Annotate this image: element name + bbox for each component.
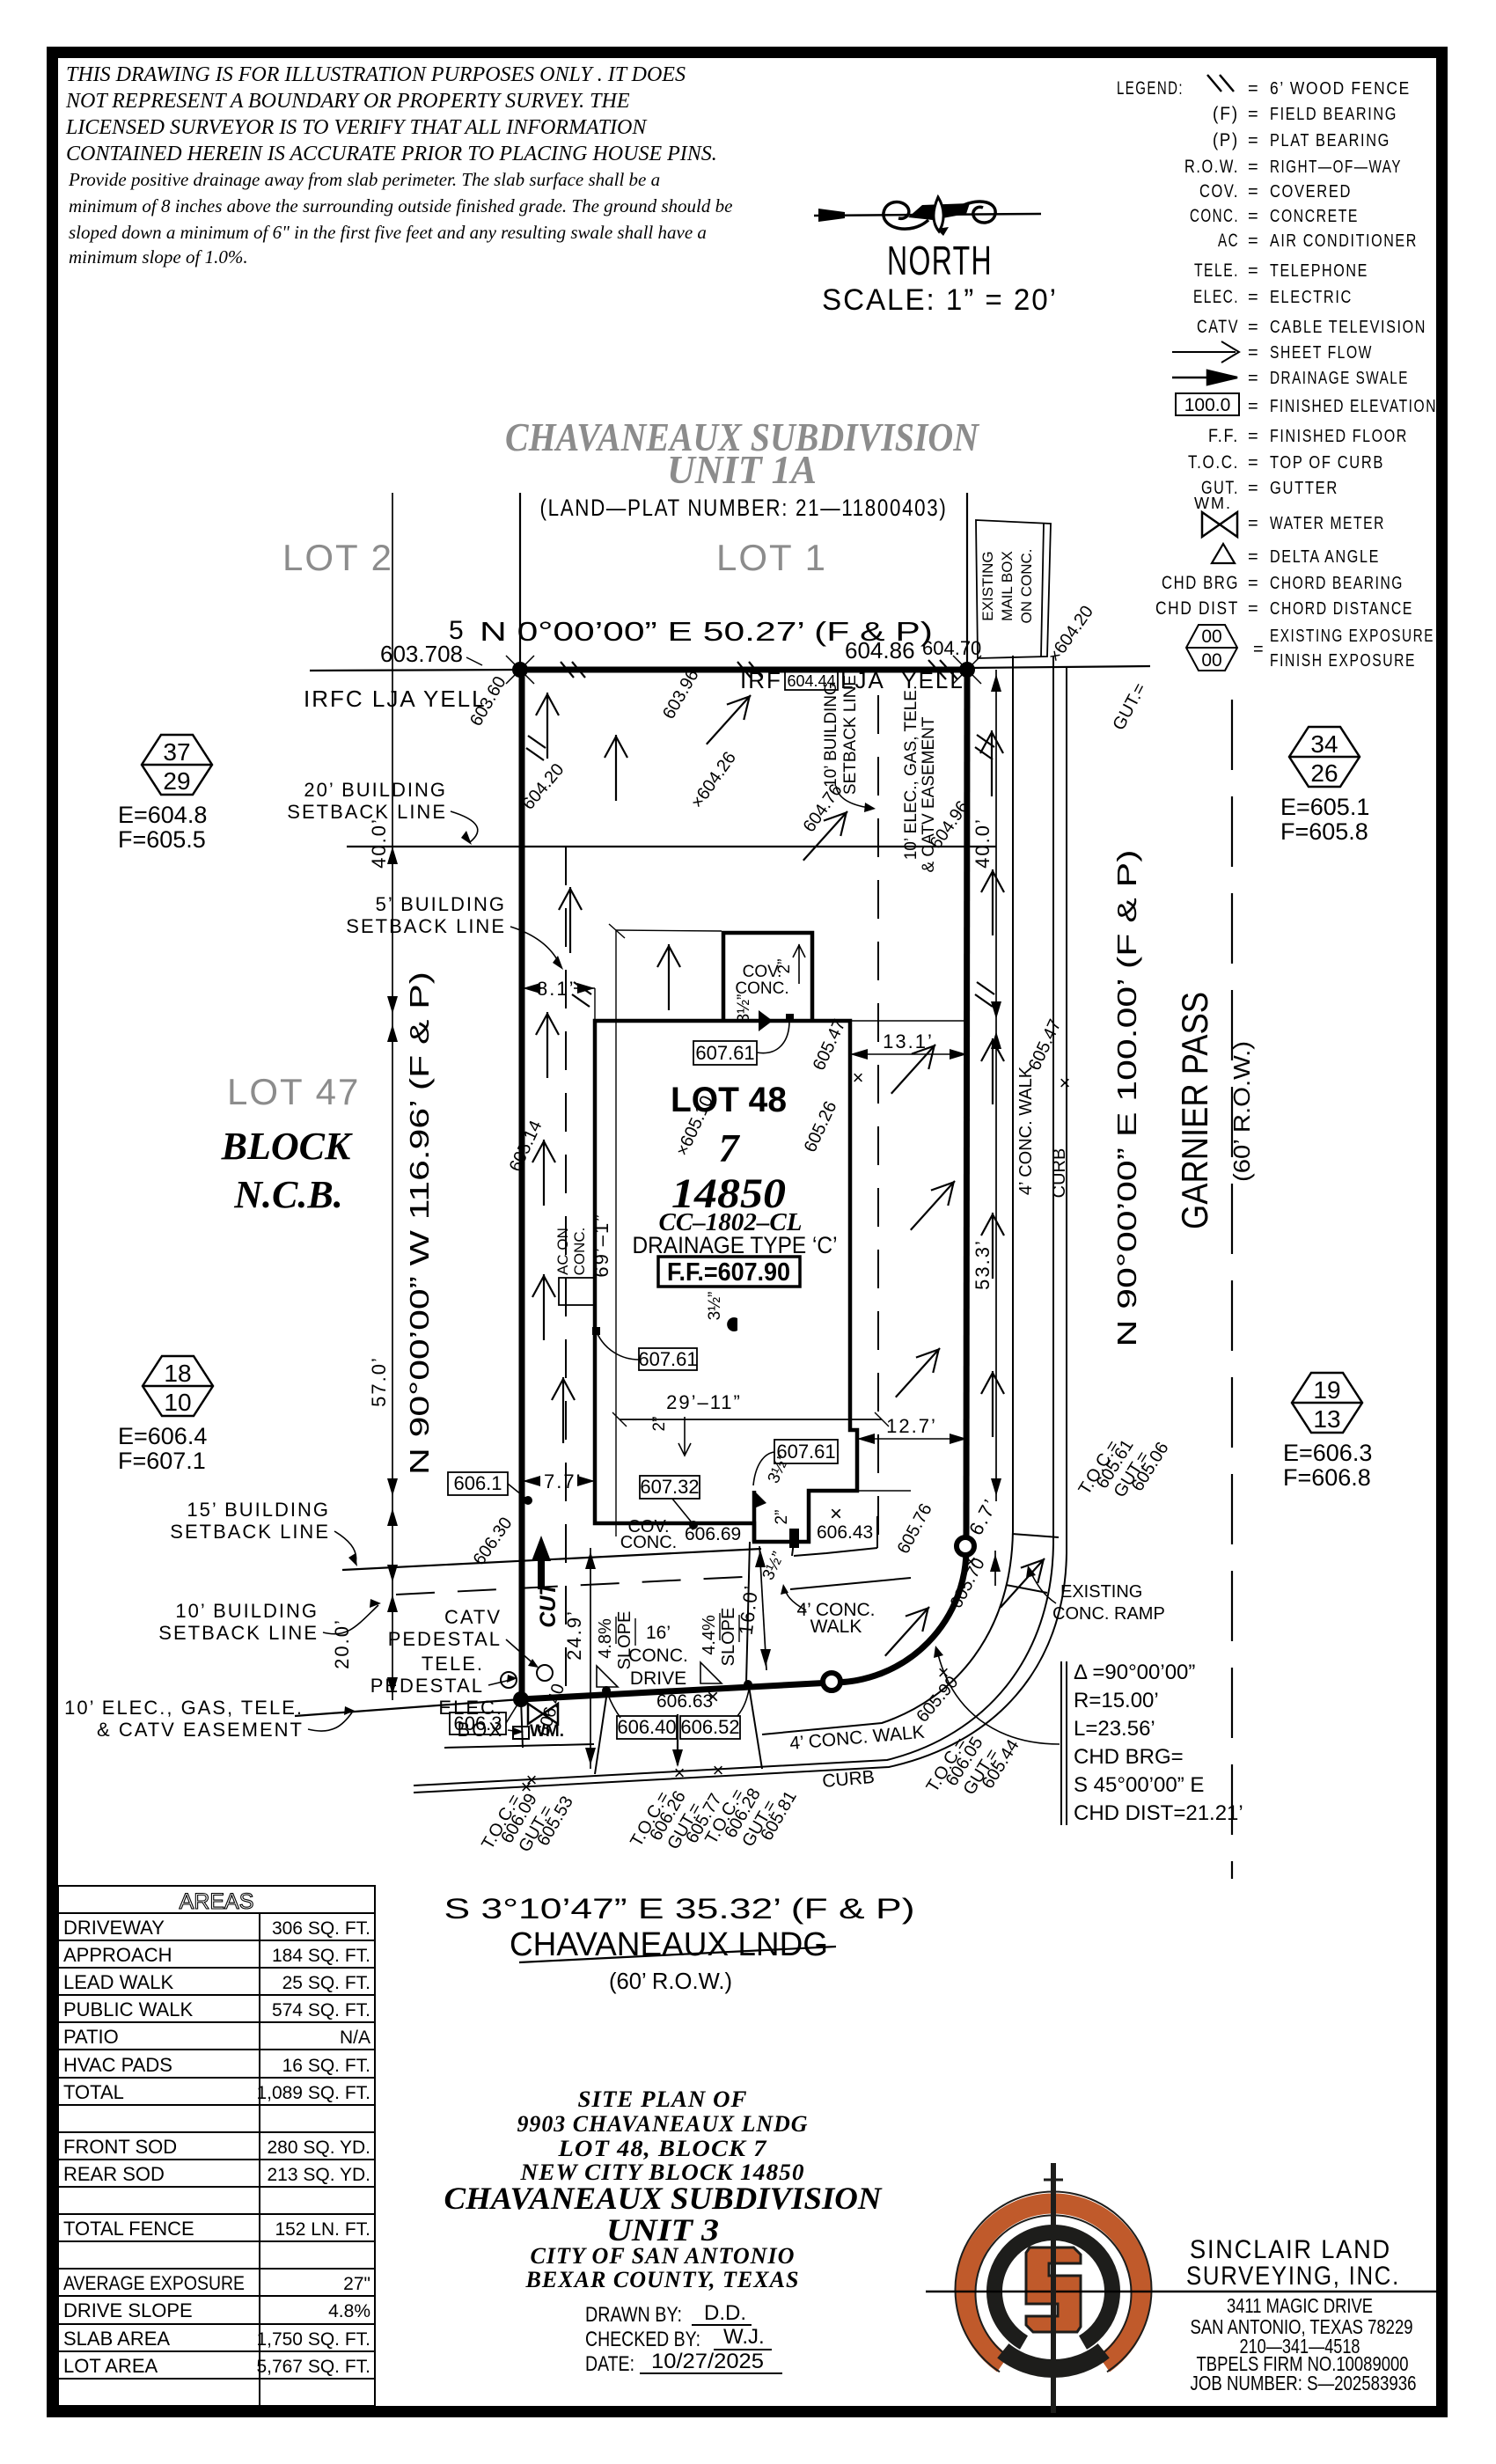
svg-text:AC ON: AC ON: [554, 1228, 571, 1275]
svg-text:19: 19: [1313, 1376, 1340, 1404]
svg-text:AVERAGE EXPOSURE: AVERAGE EXPOSURE: [63, 2272, 245, 2294]
svg-text:10’ ELEC., GAS, TELE.: 10’ ELEC., GAS, TELE.: [64, 1697, 304, 1719]
svg-text:×: ×: [526, 1769, 538, 1791]
svg-text:=: =: [1248, 453, 1260, 473]
svg-text:E=604.8: E=604.8: [118, 802, 207, 828]
svg-text:3411 MAGIC DRIVE: 3411 MAGIC DRIVE: [1227, 2294, 1373, 2317]
svg-text:PEDESTAL: PEDESTAL: [370, 1675, 484, 1697]
svg-text:2”: 2”: [773, 1510, 791, 1525]
svg-text:EXISTING: EXISTING: [979, 551, 996, 620]
svg-text:184 SQ. FT.: 184 SQ. FT.: [272, 1946, 370, 1966]
svg-text:16 SQ. FT.: 16 SQ. FT.: [282, 2056, 370, 2076]
svg-text:1,750 SQ. FT.: 1,750 SQ. FT.: [256, 2329, 370, 2350]
svg-text:4.8%: 4.8%: [328, 2301, 370, 2321]
svg-text:TELE.: TELE.: [1194, 260, 1239, 281]
svg-text:40.0’: 40.0’: [972, 818, 994, 869]
svg-text:152 LN. FT.: 152 LN. FT.: [275, 2219, 370, 2240]
svg-text:S 45°00’00” E: S 45°00’00” E: [1074, 1773, 1204, 1797]
svg-text:CONC.: CONC.: [735, 979, 788, 998]
svg-text:CATV: CATV: [1197, 317, 1239, 337]
svg-text:F.F.=607.90: F.F.=607.90: [667, 1258, 790, 1287]
svg-text:E=606.4: E=606.4: [118, 1423, 207, 1449]
svg-text:25 SQ. FT.: 25 SQ. FT.: [282, 1973, 370, 1993]
svg-text:(60’ R.O.W.): (60’ R.O.W.): [609, 1968, 732, 1994]
svg-text:Δ =90°00’00”: Δ =90°00’00”: [1074, 1661, 1195, 1684]
svg-text:sloped down a minimum of 6" in: sloped down a minimum of 6" in the first…: [69, 222, 707, 243]
svg-text:FRONT SOD: FRONT SOD: [63, 2136, 177, 2158]
svg-text:CHD DIST=21.21’: CHD DIST=21.21’: [1074, 1801, 1243, 1825]
svg-text:IRFC LJA YELL: IRFC LJA YELL: [304, 686, 487, 712]
svg-text:280 SQ. YD.: 280 SQ. YD.: [267, 2138, 370, 2158]
svg-text:5’ BUILDING: 5’ BUILDING: [376, 893, 506, 915]
svg-text:W.J.: W.J.: [723, 2325, 765, 2349]
svg-text:minimum of 8 inches above the: minimum of 8 inches above the surroundin…: [69, 195, 732, 216]
svg-text:NORTH: NORTH: [887, 238, 993, 283]
svg-text:=: =: [1248, 514, 1260, 533]
svg-text:=: =: [1248, 599, 1260, 619]
svg-text:CONCRETE: CONCRETE: [1270, 207, 1359, 226]
svg-text:=: =: [1248, 105, 1260, 124]
svg-text:CONC.: CONC.: [620, 1533, 677, 1552]
svg-text:TOTAL: TOTAL: [63, 2081, 124, 2103]
svg-text:18: 18: [164, 1360, 191, 1387]
svg-text:5,767 SQ. FT.: 5,767 SQ. FT.: [256, 2357, 370, 2377]
svg-text:00: 00: [1201, 627, 1221, 647]
svg-text:CONC.: CONC.: [628, 1646, 688, 1666]
svg-text:UNIT 1A: UNIT 1A: [667, 447, 817, 492]
svg-text:CONTAINED HEREIN IS ACCURATE P: CONTAINED HEREIN IS ACCURATE PRIOR TO PL…: [66, 143, 717, 165]
svg-text:minimum slope of 1.0%.: minimum slope of 1.0%.: [69, 246, 248, 268]
svg-text:69’–1”: 69’–1”: [590, 1213, 612, 1277]
svg-text:DRIVEWAY: DRIVEWAY: [63, 1917, 165, 1939]
svg-text:53.3’: 53.3’: [972, 1239, 994, 1290]
svg-text:607.61: 607.61: [695, 1042, 754, 1064]
svg-text:=: =: [1248, 397, 1260, 416]
svg-text:13: 13: [1313, 1405, 1340, 1433]
svg-text:TELE.: TELE.: [422, 1653, 484, 1675]
svg-text:2”: 2”: [650, 1417, 669, 1432]
svg-text:=: =: [1248, 131, 1260, 150]
svg-text:607.32: 607.32: [640, 1476, 699, 1498]
svg-text:LEAD WALK: LEAD WALK: [63, 1971, 173, 1993]
svg-text:N 90°00’00” E 100.00’ (F &: N 90°00’00” E 100.00’ (F & P): [1111, 850, 1142, 1347]
svg-text:SINCLAIR LAND: SINCLAIR LAND: [1190, 2235, 1391, 2264]
svg-text:F=605.8: F=605.8: [1280, 818, 1368, 845]
svg-text:604.70: 604.70: [922, 637, 981, 659]
svg-text:606.3: 606.3: [453, 1712, 502, 1734]
svg-text:IRF: IRF: [740, 667, 782, 693]
svg-text:DRIVE: DRIVE: [630, 1668, 686, 1689]
svg-text:=: =: [1248, 318, 1260, 337]
svg-text:LOT 1: LOT 1: [716, 537, 827, 578]
svg-text:CHECKED BY:: CHECKED BY:: [585, 2328, 700, 2351]
svg-text:SLOPE: SLOPE: [615, 1611, 634, 1670]
svg-text:LOT AREA: LOT AREA: [63, 2355, 158, 2377]
svg-text:29: 29: [163, 767, 190, 795]
svg-text:=: =: [1248, 207, 1260, 226]
svg-text:×: ×: [674, 1762, 686, 1784]
svg-text:SITE PLAN OF: SITE PLAN OF: [578, 2086, 748, 2112]
svg-text:27": 27": [343, 2274, 370, 2294]
svg-text:=: =: [1248, 79, 1260, 99]
svg-text:BEXAR COUNTY, TEXAS: BEXAR COUNTY, TEXAS: [524, 2267, 799, 2292]
svg-text:26: 26: [1310, 759, 1338, 787]
svg-text:7: 7: [719, 1126, 741, 1170]
svg-text:R.O.W.: R.O.W.: [1184, 157, 1239, 177]
svg-text:10/27/2025: 10/27/2025: [651, 2350, 764, 2373]
svg-text:FINISHED ELEVATION: FINISHED ELEVATION: [1270, 397, 1437, 416]
svg-text:=: =: [1248, 479, 1260, 498]
svg-text:N 90°00’00” W 116.96’ (F &: N 90°00’00” W 116.96’ (F & P): [404, 972, 435, 1475]
svg-text:JOB NUMBER: S—202583936: JOB NUMBER: S—202583936: [1191, 2372, 1417, 2394]
svg-text:×: ×: [1060, 1072, 1071, 1094]
svg-text:PLAT BEARING: PLAT BEARING: [1270, 131, 1390, 150]
svg-text:=: =: [1248, 288, 1260, 307]
svg-text:20’ BUILDING: 20’ BUILDING: [304, 779, 447, 801]
svg-text:N/A: N/A: [340, 2028, 370, 2048]
svg-text:606.52: 606.52: [680, 1716, 739, 1738]
svg-text:T.O.C.: T.O.C.: [1188, 452, 1239, 473]
svg-text:574 SQ. FT.: 574 SQ. FT.: [272, 2000, 370, 2020]
svg-text:606.40: 606.40: [617, 1716, 676, 1738]
svg-text:PATIO: PATIO: [63, 2026, 119, 2048]
svg-text:=: =: [1248, 158, 1260, 177]
svg-text:CHAVANEAUX LNDG: CHAVANEAUX LNDG: [510, 1926, 828, 1963]
svg-text:DRAINAGE TYPE ‘C’: DRAINAGE TYPE ‘C’: [633, 1232, 838, 1258]
svg-text:WATER METER: WATER METER: [1270, 514, 1385, 533]
svg-text:E=606.3: E=606.3: [1283, 1440, 1372, 1466]
svg-text:THIS DRAWING IS FOR ILLUSTRATI: THIS DRAWING IS FOR ILLUSTRATION PURPOSE…: [66, 63, 686, 86]
svg-text:TOP OF CURB: TOP OF CURB: [1270, 453, 1384, 473]
svg-text:57.0’: 57.0’: [368, 1356, 390, 1407]
svg-text:FINISHED FLOOR: FINISHED FLOOR: [1270, 427, 1408, 446]
svg-text:SLOPE: SLOPE: [719, 1608, 738, 1667]
svg-text:SETBACK LINE: SETBACK LINE: [346, 915, 506, 937]
svg-text:AREAS: AREAS: [180, 1889, 254, 1914]
svg-text:COV.: COV.: [1199, 181, 1239, 202]
svg-text:LICENSED SURVEYOR IS TO VERIFY: LICENSED SURVEYOR IS TO VERIFY THAT ALL …: [65, 116, 648, 139]
svg-text:F=607.1: F=607.1: [118, 1448, 206, 1474]
svg-text:F.F.: F.F.: [1208, 426, 1239, 446]
svg-text:13.1’: 13.1’: [883, 1030, 934, 1052]
svg-text:GARNIER PASS: GARNIER PASS: [1174, 992, 1215, 1229]
svg-text:CHD BRG=: CHD BRG=: [1074, 1745, 1184, 1769]
svg-text:DRIVE SLOPE: DRIVE SLOPE: [63, 2299, 193, 2321]
svg-text:F=606.8: F=606.8: [1283, 1464, 1371, 1491]
svg-text:REAR SOD: REAR SOD: [63, 2163, 165, 2185]
svg-text:TELEPHONE: TELEPHONE: [1270, 261, 1368, 281]
svg-text:DRAINAGE SWALE: DRAINAGE SWALE: [1270, 369, 1409, 388]
svg-text:CONC.: CONC.: [1190, 206, 1239, 226]
svg-text:=: =: [1248, 369, 1260, 388]
svg-text:=: =: [1248, 427, 1260, 446]
svg-text:COV.: COV.: [743, 963, 782, 981]
svg-text:=: =: [1248, 182, 1260, 202]
svg-text:APPROACH: APPROACH: [63, 1944, 172, 1966]
svg-text:213 SQ. YD.: 213 SQ. YD.: [267, 2165, 370, 2185]
svg-text:603.708: 603.708: [380, 641, 463, 667]
svg-text:CHD BRG: CHD BRG: [1162, 573, 1239, 593]
svg-text:306 SQ. FT.: 306 SQ. FT.: [272, 1918, 370, 1939]
svg-text:37: 37: [163, 738, 190, 766]
svg-text:FINISH EXPOSURE: FINISH EXPOSURE: [1270, 651, 1416, 671]
svg-text:×: ×: [853, 1067, 864, 1089]
svg-text:10’ ELEC., GAS, TELE.: 10’ ELEC., GAS, TELE.: [902, 686, 920, 861]
svg-text:7.7’: 7.7’: [544, 1470, 582, 1492]
svg-text:100.0: 100.0: [1184, 395, 1231, 415]
svg-text:604.86: 604.86: [845, 637, 915, 664]
svg-text:24.9’: 24.9’: [563, 1610, 585, 1661]
svg-text:(LAND—PLAT NUMBER: 21—118004: (LAND—PLAT NUMBER: 21—11800403): [540, 495, 948, 521]
svg-text:4.4%: 4.4%: [700, 1615, 719, 1655]
svg-text:EXISTING: EXISTING: [1060, 1582, 1142, 1602]
svg-text:607.61: 607.61: [638, 1348, 697, 1370]
svg-text:S 3°10’47” E 35.32’ (F & P: S 3°10’47” E 35.32’ (F & P): [444, 1893, 915, 1925]
svg-text:10: 10: [164, 1389, 191, 1416]
svg-text:LJA YELL: LJA YELL: [840, 667, 964, 693]
svg-text:×: ×: [965, 1551, 977, 1573]
svg-text:8.1’: 8.1’: [537, 978, 575, 1000]
svg-text:6’ WOOD FENCE: 6’ WOOD FENCE: [1270, 79, 1411, 99]
svg-text:WALK: WALK: [810, 1617, 862, 1637]
svg-text:=: =: [1248, 261, 1260, 281]
svg-text:& CATV EASEMENT: & CATV EASEMENT: [920, 716, 938, 872]
svg-text:DATE:: DATE:: [585, 2352, 634, 2376]
svg-text:PEDESTAL: PEDESTAL: [388, 1628, 502, 1650]
svg-text:EXISTING EXPOSURE: EXISTING EXPOSURE: [1270, 627, 1434, 646]
svg-text:1,089 SQ. FT.: 1,089 SQ. FT.: [256, 2083, 370, 2103]
svg-text:4.8%: 4.8%: [596, 1618, 615, 1659]
svg-text:ON CONC.: ON CONC.: [1018, 549, 1035, 624]
svg-text:CHAVANEAUX SUBDIVISION: CHAVANEAUX SUBDIVISION: [444, 2181, 884, 2216]
svg-text:×: ×: [830, 1502, 842, 1526]
svg-text:00: 00: [1201, 650, 1221, 671]
svg-text:F=605.5: F=605.5: [118, 826, 206, 853]
svg-text:(60’ R.O.W.): (60’ R.O.W.): [1228, 1041, 1255, 1182]
svg-text:LOT 47: LOT 47: [227, 1071, 360, 1112]
svg-text:4’ CONC. WALK: 4’ CONC. WALK: [1016, 1066, 1036, 1195]
svg-text:606.69: 606.69: [685, 1524, 741, 1544]
svg-text:UNIT 3: UNIT 3: [606, 2212, 719, 2248]
svg-text:×: ×: [707, 1685, 719, 1709]
svg-text:WM.: WM.: [1194, 495, 1232, 512]
svg-text:16’: 16’: [646, 1623, 671, 1643]
svg-text:NOT REPRESENT A BOUNDARY OR PR: NOT REPRESENT A BOUNDARY OR PROPERTY SUR…: [65, 90, 630, 113]
svg-text:15’ BUILDING: 15’ BUILDING: [187, 1499, 330, 1521]
svg-text:40.0’: 40.0’: [368, 818, 390, 869]
svg-text:606.43: 606.43: [817, 1522, 873, 1543]
svg-text:CHORD BEARING: CHORD BEARING: [1270, 574, 1404, 593]
svg-text:20.0’: 20.0’: [331, 1618, 353, 1669]
svg-text:SCALE: 1” = 20’: SCALE: 1” = 20’: [822, 283, 1058, 317]
svg-text:RIGHT—OF—WAY: RIGHT—OF—WAY: [1270, 158, 1402, 177]
svg-text:=: =: [1253, 640, 1265, 659]
svg-text:(P): (P): [1213, 130, 1239, 150]
svg-text:LOT 48: LOT 48: [671, 1081, 787, 1119]
svg-text:9903 CHAVANEAUX LNDG: 9903 CHAVANEAUX LNDG: [517, 2111, 809, 2137]
svg-text:FIELD BEARING: FIELD BEARING: [1270, 105, 1397, 124]
svg-text:AIR CONDITIONER: AIR CONDITIONER: [1270, 231, 1418, 251]
svg-text:606.63: 606.63: [656, 1691, 713, 1712]
svg-text:(F): (F): [1213, 104, 1239, 124]
svg-text:SURVEYING, INC.: SURVEYING, INC.: [1186, 2262, 1400, 2291]
svg-text:ELEC.: ELEC.: [1193, 287, 1239, 307]
svg-text:=: =: [1248, 547, 1260, 567]
svg-text:606.1: 606.1: [453, 1472, 502, 1494]
svg-text:3½”: 3½”: [735, 994, 753, 1023]
svg-text:N.C.B.: N.C.B.: [233, 1173, 342, 1216]
svg-text:D.D.: D.D.: [704, 2301, 746, 2325]
svg-text:=: =: [1248, 231, 1260, 251]
svg-text:AC: AC: [1218, 231, 1239, 251]
svg-text:DRAWN BY:: DRAWN BY:: [585, 2303, 682, 2327]
svg-text:MAIL BOX: MAIL BOX: [999, 551, 1016, 621]
svg-text:CONC.: CONC.: [571, 1228, 588, 1276]
svg-text:R=15.00’: R=15.00’: [1074, 1689, 1159, 1712]
svg-text:3½”: 3½”: [706, 1292, 724, 1321]
svg-text:CONC. RAMP: CONC. RAMP: [1052, 1604, 1165, 1624]
svg-text:10’ BUILDING: 10’ BUILDING: [822, 682, 840, 788]
svg-text:L=23.56’: L=23.56’: [1074, 1717, 1155, 1741]
svg-text:LEGEND:: LEGEND:: [1117, 78, 1184, 99]
svg-text:HVAC PADS: HVAC PADS: [63, 2054, 172, 2076]
svg-text:BLOCK: BLOCK: [221, 1125, 353, 1168]
svg-text:PUBLIC WALK: PUBLIC WALK: [63, 1998, 193, 2020]
svg-text:E=605.1: E=605.1: [1280, 794, 1369, 820]
svg-text:DELTA ANGLE: DELTA ANGLE: [1270, 547, 1380, 567]
svg-text:SETBACK LINE: SETBACK LINE: [170, 1521, 330, 1543]
svg-text:ELECTRIC: ELECTRIC: [1270, 288, 1353, 307]
svg-text:SETBACK LINE: SETBACK LINE: [158, 1622, 319, 1644]
svg-text:×: ×: [713, 1759, 724, 1781]
svg-text:34: 34: [1310, 730, 1338, 758]
svg-text:CHD DIST: CHD DIST: [1155, 598, 1239, 619]
svg-text:CURB: CURB: [1050, 1148, 1069, 1199]
svg-text:TOTAL FENCE: TOTAL FENCE: [63, 2218, 194, 2240]
svg-text:CABLE TELEVISION: CABLE TELEVISION: [1270, 318, 1426, 337]
svg-text:& CATV EASEMENT: & CATV EASEMENT: [97, 1719, 304, 1741]
svg-text:LOT 48, BLOCK 7: LOT 48, BLOCK 7: [557, 2136, 766, 2161]
svg-text:Provide positive drainage away: Provide positive drainage away from slab…: [68, 169, 660, 190]
svg-text:29’–11”: 29’–11”: [666, 1391, 742, 1413]
svg-text:=: =: [1248, 343, 1260, 363]
svg-text:CATV: CATV: [444, 1606, 502, 1628]
svg-text:12.7’: 12.7’: [886, 1415, 937, 1437]
svg-text:GUTTER: GUTTER: [1270, 479, 1338, 498]
svg-text:LOT 2: LOT 2: [282, 537, 393, 578]
svg-text:SLAB AREA: SLAB AREA: [63, 2328, 170, 2350]
svg-text:CHORD DISTANCE: CHORD DISTANCE: [1270, 599, 1413, 619]
svg-text:10’ BUILDING: 10’ BUILDING: [175, 1600, 319, 1622]
svg-text:=: =: [1248, 574, 1260, 593]
svg-text:COVERED: COVERED: [1270, 182, 1352, 202]
svg-text:SHEET FLOW: SHEET FLOW: [1270, 343, 1373, 363]
